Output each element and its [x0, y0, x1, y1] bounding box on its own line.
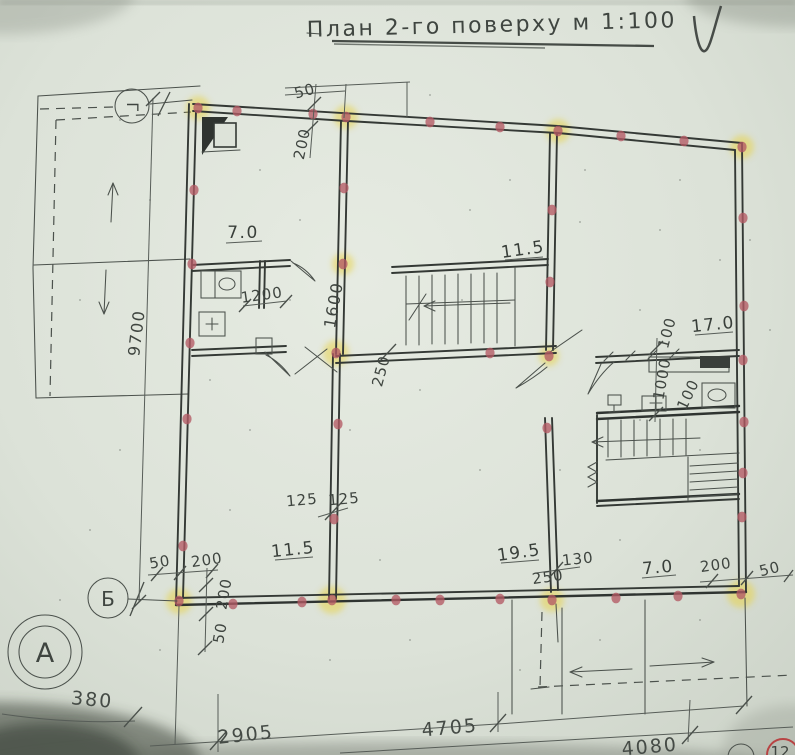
axis-label-b: Б [101, 587, 115, 611]
sheet-number: 12 [770, 743, 789, 755]
dim-wall-125-right: 125 [327, 489, 360, 510]
room-area-upper-left: 7.0 [227, 223, 259, 243]
axis-label-g: Г [123, 102, 142, 112]
axis-bubble-a: А [8, 615, 82, 689]
counter-icon [700, 356, 730, 368]
dim-overall-380: 380 [70, 687, 114, 713]
dim-bl-50-v: 50 [209, 621, 230, 645]
scanned-floorplan-page: План 2-го поверху м 1:100 [0, 0, 795, 755]
axis-label-a: А [36, 638, 55, 669]
floor-plan-drawing: План 2-го поверху м 1:100 [0, 0, 795, 755]
dim-stub-130: 130 [561, 548, 594, 569]
dim-overall-4080: 4080 [621, 734, 679, 755]
dim-bl-50-h: 50 [148, 551, 172, 572]
dim-wall-125-left: 125 [285, 490, 318, 511]
paper-background [0, 0, 795, 755]
